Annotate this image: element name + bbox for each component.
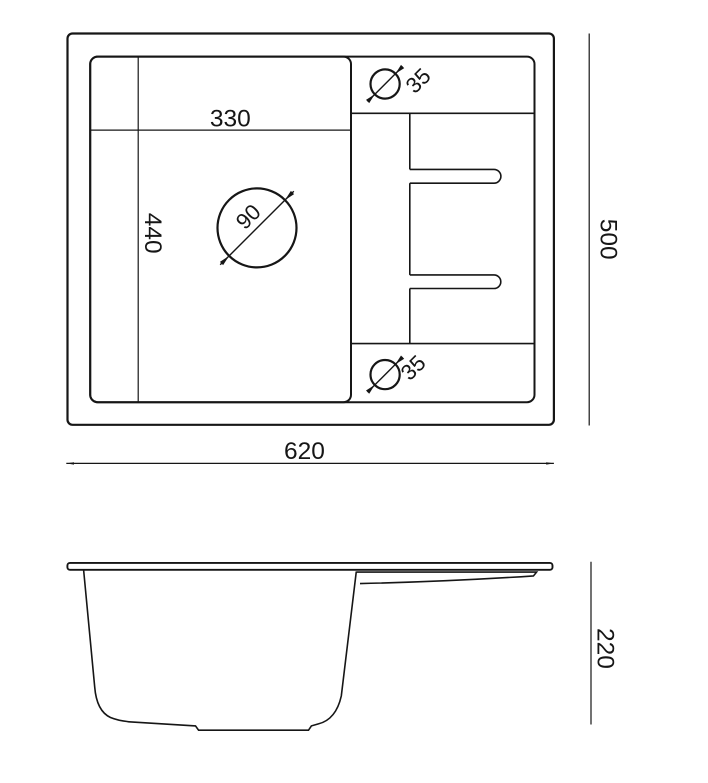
svg-text:620: 620 xyxy=(284,438,325,465)
svg-text:500: 500 xyxy=(595,219,622,260)
svg-text:220: 220 xyxy=(591,628,618,669)
svg-text:330: 330 xyxy=(210,106,251,133)
svg-text:440: 440 xyxy=(139,213,166,254)
